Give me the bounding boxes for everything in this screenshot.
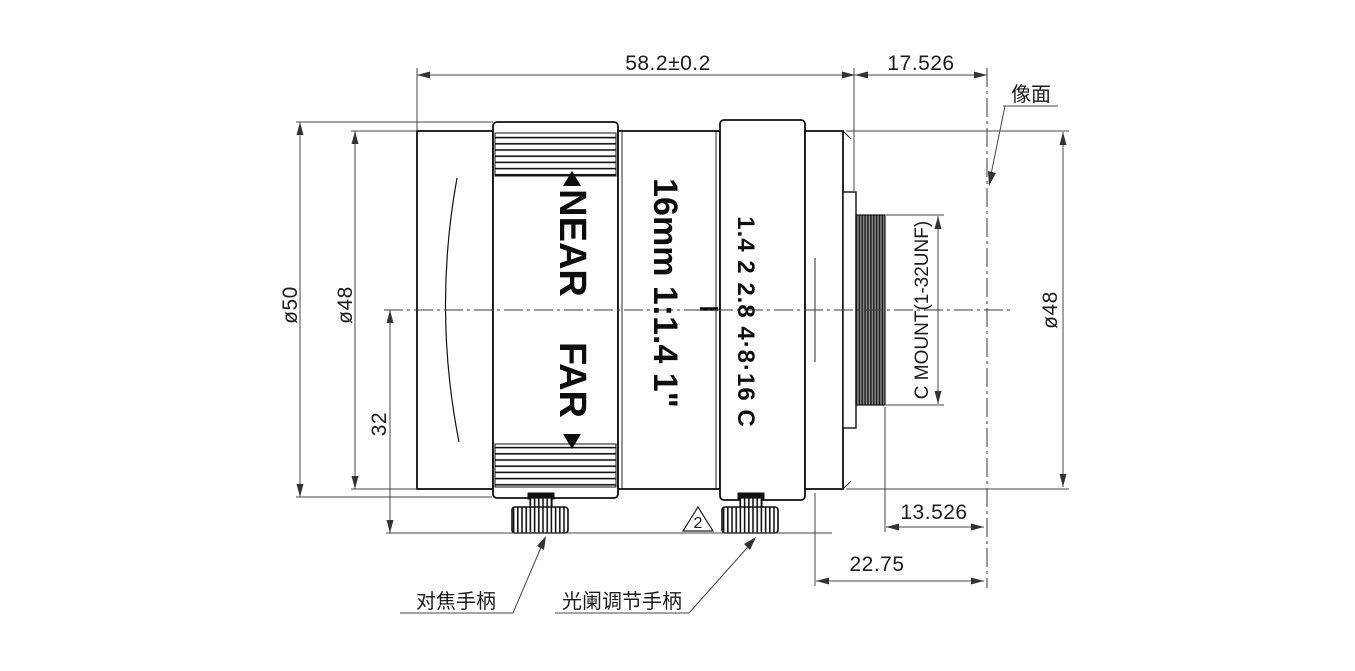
aperture-scale-marking: 1.4 2 2.8 4·8·16 C xyxy=(732,216,759,427)
lens-spec-marking: 16mm 1:1.4 1" xyxy=(646,178,684,408)
focus-handle-label: 对焦手柄 xyxy=(416,590,496,613)
revision-number: 2 xyxy=(694,515,703,532)
dim-thread-end-to-image: 13.526 xyxy=(900,501,967,524)
flange-chamfer-top xyxy=(843,131,851,139)
dim-flange-focal-distance: 17.526 xyxy=(887,52,954,75)
focus-ring-knurl-bottom xyxy=(495,444,616,487)
aperture-handle-label: 光阑调节手柄 xyxy=(562,590,682,613)
drawing-sheet: 2 NEAR FAR 16mm 1:1.4 1" 1.4 2 2.8 4·8·1… xyxy=(0,0,1355,671)
dim-shoulder-to-image: 22.75 xyxy=(849,553,904,576)
far-marking: FAR xyxy=(551,342,593,418)
aperture-handle-leader-arrow xyxy=(744,537,756,550)
lens-technical-drawing: 2 NEAR FAR 16mm 1:1.4 1" 1.4 2 2.8 4·8·1… xyxy=(0,0,1355,671)
dim-handle-drop: 32 xyxy=(368,412,391,436)
focus-ring-knurl-top xyxy=(495,133,616,176)
image-plane-label: 像面 xyxy=(1011,83,1051,106)
focus-handle-knob xyxy=(512,507,568,533)
dim-overall-length: 58.2±0.2 xyxy=(625,52,711,75)
focus-handle-leader-arrow xyxy=(537,536,546,550)
flange-chamfer-bottom xyxy=(843,481,851,489)
focus-handle xyxy=(512,493,568,533)
dim-rear-diameter: ø48 xyxy=(1039,291,1062,329)
dim-front-outer-diameter: ø50 xyxy=(279,286,302,324)
near-marking: NEAR xyxy=(551,189,593,297)
dim-front-ring-diameter: ø48 xyxy=(334,286,357,324)
aperture-handle-knob xyxy=(722,507,778,533)
dim-mount-thread: C MOUNT(1-32UNF) xyxy=(912,221,933,399)
image-plane-leader-arrow xyxy=(988,171,996,186)
